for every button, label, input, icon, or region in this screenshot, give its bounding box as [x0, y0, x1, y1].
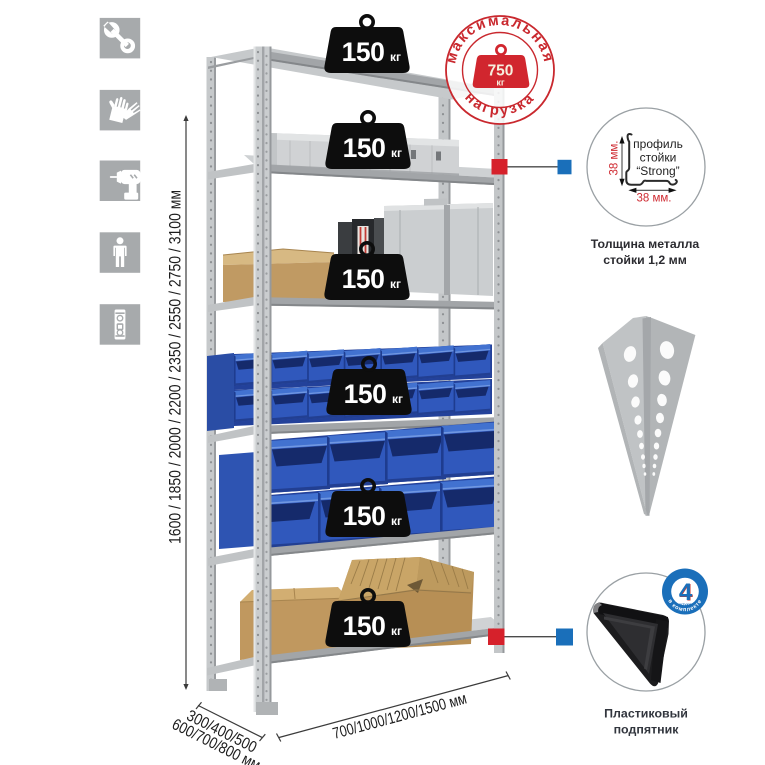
svg-text:38 мм.: 38 мм.: [637, 193, 672, 205]
svg-text:стойки: стойки: [640, 151, 677, 165]
svg-text:38 мм.: 38 мм.: [609, 141, 621, 176]
svg-text:штуки: штуки: [679, 602, 692, 607]
svg-text:подпятник: подпятник: [614, 723, 680, 737]
svg-text:“Strong”: “Strong”: [636, 164, 679, 178]
svg-text:Толщина металла: Толщина металла: [591, 237, 700, 251]
svg-text:профиль: профиль: [633, 137, 683, 151]
svg-text:стойки 1,2 мм: стойки 1,2 мм: [603, 253, 687, 267]
svg-text:1600 / 1850 / 2000 / 2200 / 23: 1600 / 1850 / 2000 / 2200 / 2350 / 2550 …: [166, 190, 185, 544]
svg-text:Пластиковый: Пластиковый: [604, 707, 688, 721]
svg-text:кг: кг: [496, 78, 505, 88]
